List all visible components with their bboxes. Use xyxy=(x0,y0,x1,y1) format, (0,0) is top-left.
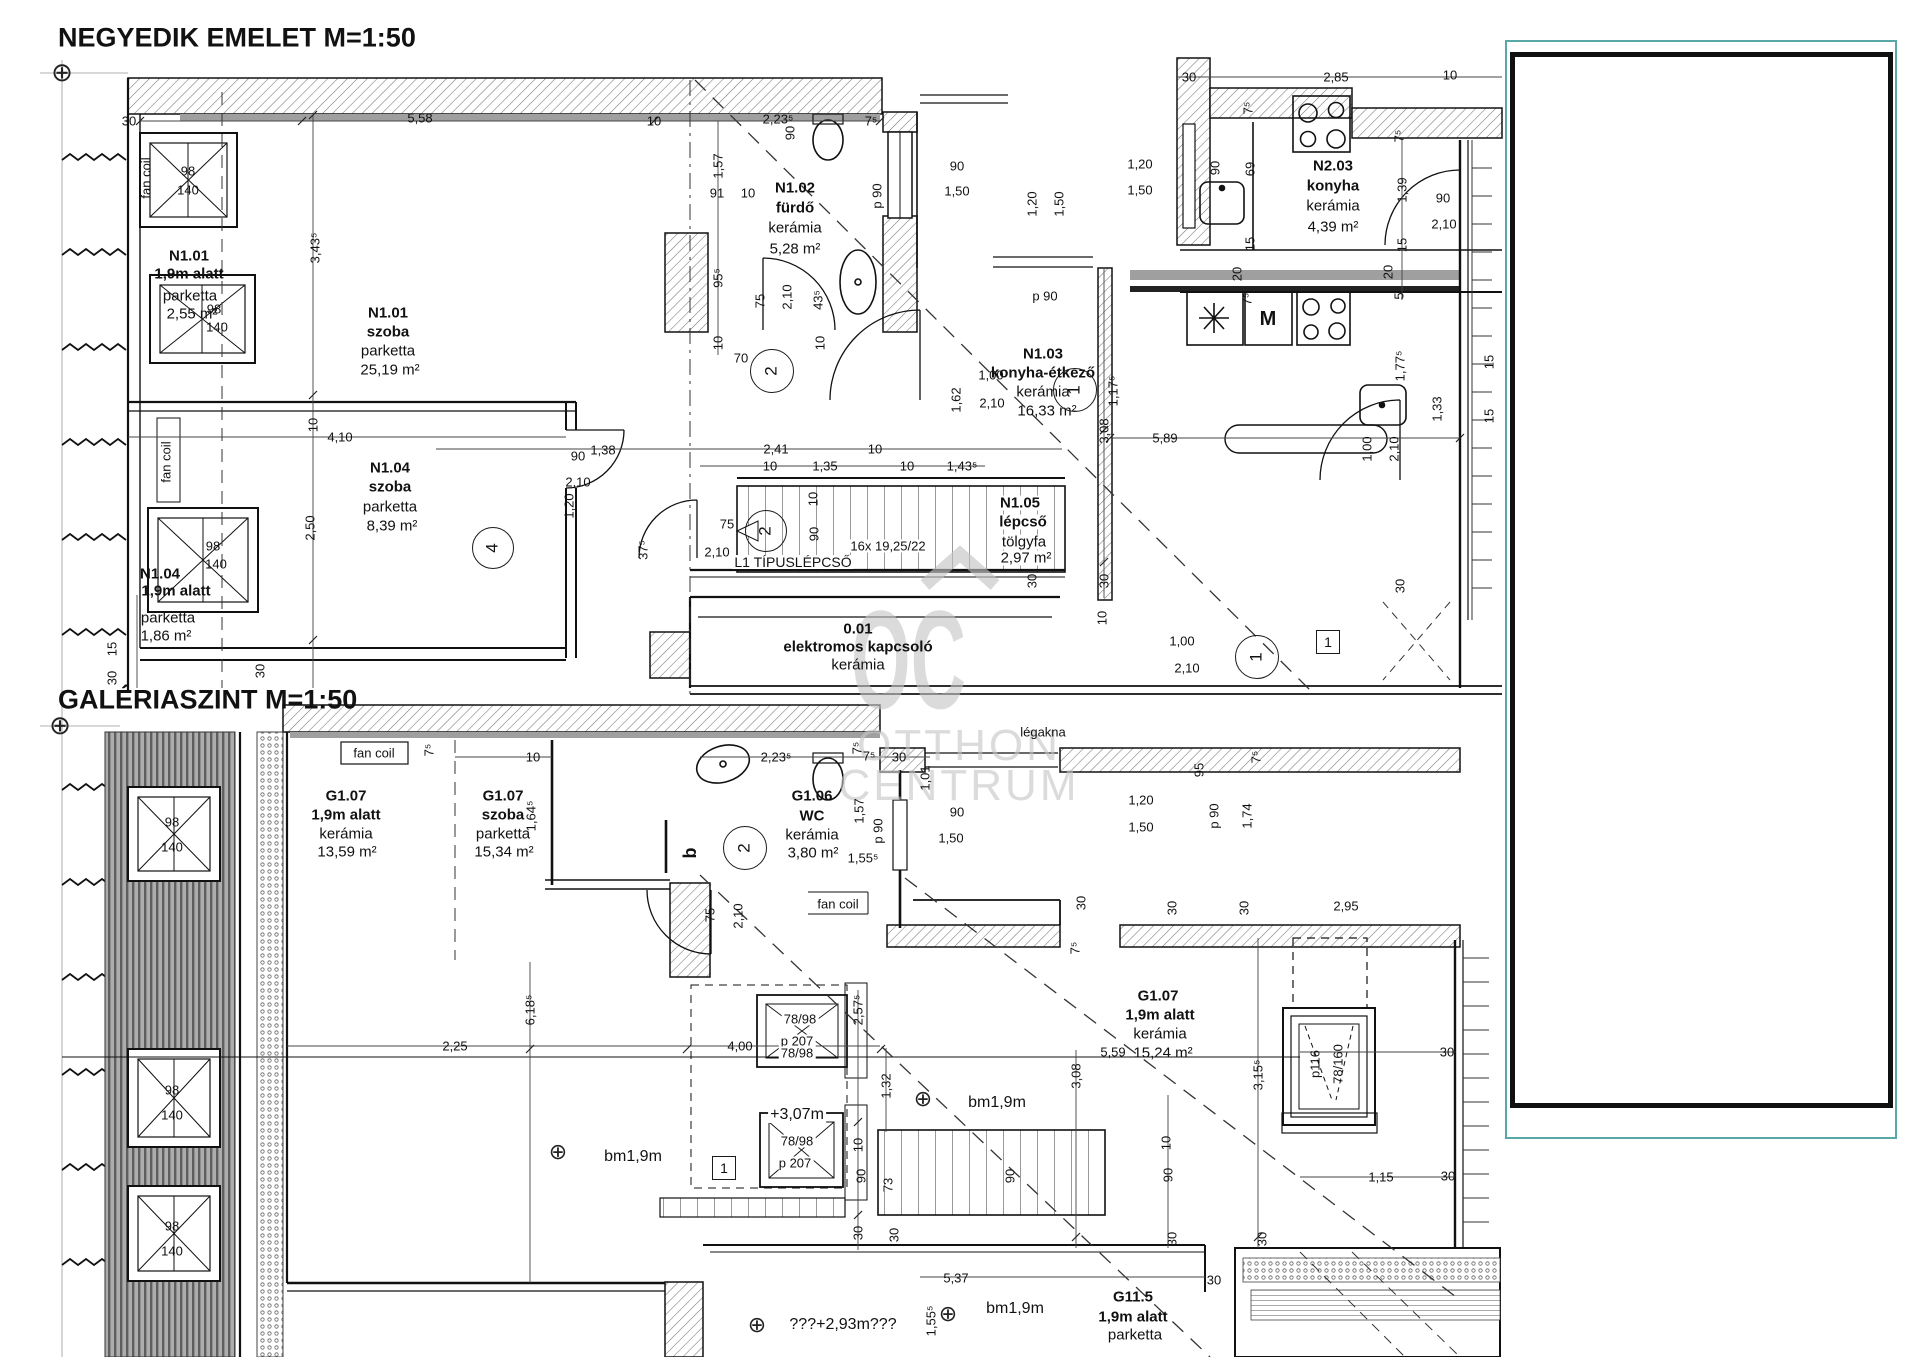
plan-label: kerámia xyxy=(831,658,884,673)
plan-label: 2,10 xyxy=(1174,662,1199,675)
plan-label: 1,20 xyxy=(1127,158,1152,171)
plan-label: 73 xyxy=(882,1178,895,1192)
plan-label: 2,23⁵ xyxy=(761,751,792,764)
plan-label: bm1,9m xyxy=(968,1095,1026,1111)
plan-label: 1,55⁵ xyxy=(848,852,879,865)
plan-label: 1,33 xyxy=(1431,396,1444,421)
plan-label: 10 xyxy=(852,1138,865,1152)
plan-label: 10 xyxy=(763,460,777,473)
plan-label: 6,18⁵ xyxy=(524,995,537,1026)
plan-label: p116 xyxy=(1309,1050,1322,1078)
reference-flag-marker: 1 xyxy=(712,1156,736,1180)
plan-label: 95⁵ xyxy=(712,268,725,288)
plan-label: 1,00 xyxy=(1361,436,1374,461)
plan-label: b xyxy=(681,848,699,859)
plan-label: 10 xyxy=(1096,611,1109,625)
plan-label: 30 xyxy=(1098,574,1111,588)
reference-circle-marker: 1 xyxy=(1235,635,1279,679)
plan-label: 2,50 xyxy=(304,515,317,540)
plan-label: lépcső xyxy=(997,515,1049,530)
plan-label: 7⁵ xyxy=(1250,751,1263,764)
reference-flag-marker: 1 xyxy=(1316,630,1340,654)
reference-circle-marker: 4 xyxy=(472,527,514,569)
plan-label: 15,24 m² xyxy=(1133,1046,1192,1061)
plan-label: parketta xyxy=(1108,1328,1162,1343)
plan-label: 30 xyxy=(1256,1232,1269,1246)
plan-label: 30 xyxy=(1238,901,1251,915)
plan-label: 30 xyxy=(1026,574,1039,588)
plan-label: 1,39 xyxy=(1396,177,1409,202)
plan-label: tölgyfa xyxy=(1000,535,1048,550)
plan-label: 1,15 xyxy=(1368,1171,1393,1184)
plan-label: 2,57⁵ xyxy=(852,995,865,1026)
plan-label: 30 xyxy=(1166,1232,1179,1246)
plan-label: kerámia xyxy=(1306,199,1359,214)
plan-label: 90 xyxy=(808,527,821,541)
plan-label: N1.02 xyxy=(775,181,815,196)
plan-label: 90 xyxy=(950,160,964,173)
plan-label: elektromos kapcsoló xyxy=(783,640,932,655)
plan-label: 30 xyxy=(888,1228,901,1242)
plan-label: 1,50 xyxy=(944,185,969,198)
plan-label: 4,00 xyxy=(727,1040,752,1053)
plan-label: szoba xyxy=(369,480,412,495)
plan-label: 1,62 xyxy=(950,387,963,412)
plan-label: parketta xyxy=(141,611,195,626)
plan-label: G1.07 xyxy=(326,789,367,804)
plan-label: G1.07 xyxy=(1138,989,1179,1004)
plan-label: 90 xyxy=(784,126,797,140)
plan-label: NEGYEDIK EMELET M=1:50 xyxy=(58,25,416,52)
plan-label: 2,95 xyxy=(1333,900,1358,913)
plan-label: 7⁵ xyxy=(1242,102,1255,115)
plan-label: 30 xyxy=(1075,896,1088,910)
plan-label: G1.06 xyxy=(792,789,833,804)
plan-label: N1.05 xyxy=(998,496,1042,511)
survey-point-icon: ⊕ xyxy=(939,1303,957,1325)
plan-label: 1,50 xyxy=(1128,821,1153,834)
plan-label: 1,9m alatt xyxy=(1125,1008,1194,1023)
plan-label: 75 xyxy=(754,294,767,308)
plan-label: 1,20 xyxy=(563,493,576,518)
plan-label: fan coil xyxy=(353,747,394,760)
survey-point-icon: ⊕ xyxy=(914,1088,932,1110)
plan-label: 10 xyxy=(1160,1136,1173,1150)
plan-label: 2,25 xyxy=(442,1040,467,1053)
plan-label: 4,39 m² xyxy=(1308,220,1359,235)
side-panel xyxy=(1510,52,1893,1108)
plan-label: 90 xyxy=(1162,1168,1175,1182)
plan-label: 1,32 xyxy=(880,1073,893,1098)
plan-label: 1,57 xyxy=(712,153,725,178)
plan-label: 15 xyxy=(1483,355,1496,369)
plan-label: 3,80 m² xyxy=(788,846,839,861)
plan-label: 2,10 xyxy=(979,397,1004,410)
plan-label: 2,55 m² xyxy=(167,307,218,322)
plan-label: 3,15⁵ xyxy=(1252,1060,1265,1091)
plan-label: 10 xyxy=(1443,69,1457,82)
plan-label: 140 xyxy=(161,841,183,854)
plan-label: 1,50 xyxy=(938,832,963,845)
floor-plan-page: OC OTTHON CENTRUM const data = JSON.pars… xyxy=(0,0,1920,1357)
plan-label: 3,43⁵ xyxy=(309,233,322,264)
plan-label: 98 xyxy=(165,1220,179,1233)
plan-label: G1.07 xyxy=(483,789,524,804)
plan-label: 0.01 xyxy=(843,622,872,637)
survey-point-icon: ⊕ xyxy=(49,712,71,738)
plan-label: p 90 xyxy=(1208,803,1221,828)
plan-label: konyha xyxy=(1307,179,1360,194)
plan-label: N2.03 xyxy=(1313,159,1353,174)
plan-label: 1,17⁵ xyxy=(1107,376,1120,407)
plan-label: 10 xyxy=(526,751,540,764)
plan-label: p 90 xyxy=(871,183,884,208)
plan-label: 1,74 xyxy=(1241,803,1254,828)
plan-label: 90 xyxy=(1209,161,1222,175)
plan-label: 4,10 xyxy=(327,431,352,444)
watermark-line2: CENTRUM xyxy=(839,761,1080,810)
plan-label: 1,20 xyxy=(1128,794,1153,807)
plan-label: 15 xyxy=(1396,238,1409,252)
plan-label: 140 xyxy=(161,1109,183,1122)
plan-label: 78/98 xyxy=(782,1013,819,1026)
plan-label: N1.03 xyxy=(1023,347,1063,362)
plan-label: 2,10 xyxy=(704,546,729,559)
plan-label: 98 xyxy=(181,165,195,178)
plan-label: 69 xyxy=(1244,162,1257,176)
plan-label: p 207 xyxy=(777,1157,814,1170)
plan-label: 30 xyxy=(1182,71,1196,84)
plan-label: 7⁵ xyxy=(865,115,878,128)
plan-label: p 90 xyxy=(1032,290,1057,303)
plan-label: 20 xyxy=(1231,267,1244,281)
plan-label: 75 xyxy=(720,518,734,531)
plan-label: G11.5 xyxy=(1113,1290,1153,1305)
plan-label: 10 xyxy=(900,460,914,473)
plan-label: kerámia xyxy=(1133,1027,1186,1042)
plan-label: 2,10 xyxy=(565,476,590,489)
plan-label: 2,10 xyxy=(1431,218,1456,231)
plan-label: 5,59 xyxy=(1100,1046,1125,1059)
plan-label: 1,86 m² xyxy=(141,629,192,644)
plan-label: fan coil xyxy=(140,157,153,198)
plan-label: bm1,9m xyxy=(604,1149,662,1165)
plan-label: parketta xyxy=(476,827,530,842)
plan-label: 140 xyxy=(161,1245,183,1258)
plan-label: 10 xyxy=(307,418,320,432)
plan-label: 5,37 xyxy=(943,1272,968,1285)
plan-label: 10 xyxy=(741,187,755,200)
plan-label: fürdő xyxy=(776,201,814,216)
plan-label: 10 xyxy=(807,492,820,506)
plan-label: N1.01 xyxy=(169,249,209,264)
plan-label: 7⁵ xyxy=(1069,942,1082,955)
plan-label: 30 xyxy=(892,751,906,764)
plan-label: 30 xyxy=(1394,579,1407,593)
plan-label: 140 xyxy=(177,184,199,197)
reference-circle-marker: 1 xyxy=(1053,368,1097,412)
plan-label: 15 xyxy=(1244,237,1257,251)
plan-label: 1,38 xyxy=(590,444,615,457)
plan-label: 91 xyxy=(710,187,724,200)
plan-label: 37⁵ xyxy=(637,540,650,560)
plan-label: 10 xyxy=(868,443,882,456)
plan-label: 90 xyxy=(1436,192,1450,205)
plan-label: M xyxy=(1260,309,1277,329)
plan-label: ???+2,93m??? xyxy=(789,1317,896,1333)
plan-label: 1,9m alatt xyxy=(1098,1310,1167,1325)
plan-label: 1,50 xyxy=(1053,191,1066,216)
plan-label: 1,43⁵ xyxy=(947,460,978,473)
plan-label: 30 xyxy=(122,115,136,128)
plan-label: 90 xyxy=(1004,1169,1017,1183)
plan-label: 43⁵ xyxy=(812,290,825,310)
plan-label: 2,10 xyxy=(732,903,745,928)
survey-point-icon: ⊕ xyxy=(748,1314,766,1336)
plan-label: fan coil xyxy=(160,441,173,482)
plan-label: parketta xyxy=(163,289,217,304)
plan-label: N1.04 xyxy=(140,567,180,582)
plan-label: 5,89 xyxy=(1152,432,1177,445)
plan-label: 2,41 xyxy=(763,443,788,456)
plan-label: 8,39 m² xyxy=(367,519,418,534)
plan-label: 30 xyxy=(852,1226,865,1240)
plan-label: N1.04 xyxy=(370,461,410,476)
plan-label: L1 TÍPUSLÉPCSŐ xyxy=(732,555,853,569)
plan-label: 16x 19,25/22 xyxy=(848,540,927,553)
plan-label: GALÉRIASZINT M=1:50 xyxy=(58,687,357,714)
plan-label: 10 xyxy=(647,115,661,128)
plan-label: N1.01 xyxy=(368,306,408,321)
plan-label: 1,9m alatt xyxy=(311,808,380,823)
plan-label: 5,28 m² xyxy=(770,242,821,257)
plan-label: 5 xyxy=(1393,292,1406,299)
plan-label: 7⁵ xyxy=(1241,293,1254,306)
plan-label: 30 xyxy=(1440,1046,1454,1059)
plan-label: +3,07m xyxy=(768,1107,826,1123)
plan-label: kerámia xyxy=(785,828,838,843)
plan-label: 2,10 xyxy=(1388,436,1401,461)
plan-label: 7⁵ xyxy=(423,744,436,757)
plan-label: WC xyxy=(800,809,825,824)
plan-label: 140 xyxy=(205,558,227,571)
plan-label: 78/98 xyxy=(779,1135,816,1148)
survey-point-icon: ⊕ xyxy=(51,59,73,85)
plan-label: 1,64⁵ xyxy=(525,801,538,832)
plan-label: 2,10 xyxy=(781,284,794,309)
reference-circle-marker: 2 xyxy=(723,826,767,870)
plan-label: 2,97 m² xyxy=(999,551,1054,566)
plan-label: 75 xyxy=(704,908,717,922)
plan-label: parketta xyxy=(361,344,415,359)
plan-label: 13,59 m² xyxy=(317,845,376,860)
plan-label: 1,55⁵ xyxy=(925,1306,938,1337)
plan-label: 3,08 xyxy=(1098,418,1111,443)
plan-label: 15 xyxy=(106,642,119,656)
plan-label: 90 xyxy=(950,806,964,819)
plan-label: 3,08 xyxy=(1070,1063,1083,1088)
plan-label: 30 xyxy=(254,664,267,678)
plan-label: 95 xyxy=(1193,763,1206,777)
plan-label: 10 xyxy=(814,336,827,350)
plan-label: 15 xyxy=(1483,409,1496,423)
reference-circle-marker: 2 xyxy=(745,510,787,552)
plan-label: 78/98 xyxy=(779,1047,816,1060)
plan-label: 15,34 m² xyxy=(474,845,533,860)
plan-label: 1,35 xyxy=(812,460,837,473)
plan-label: 1,9m alatt xyxy=(154,267,223,282)
plan-label: 20 xyxy=(1382,265,1395,279)
plan-label: 30 xyxy=(1441,1170,1455,1183)
plan-label: légakna xyxy=(1020,726,1066,739)
plan-label: 90 xyxy=(855,1169,868,1183)
plan-label: kerámia xyxy=(768,221,821,236)
reference-circle-marker: 2 xyxy=(750,349,794,393)
plan-label: 2,23⁵ xyxy=(763,113,794,126)
plan-label: 1,20 xyxy=(1026,191,1039,216)
plan-label: 98 xyxy=(165,816,179,829)
plan-label: 70 xyxy=(734,352,748,365)
plan-label: 1,01 xyxy=(919,765,932,790)
plan-label: szoba xyxy=(482,808,525,823)
plan-label: 1,57 xyxy=(853,798,866,823)
plan-label: 1,50 xyxy=(1127,184,1152,197)
plan-label: 7⁵ xyxy=(851,742,864,755)
plan-label: 2,85 xyxy=(1323,71,1348,84)
plan-label: 1,9m alatt xyxy=(141,584,210,599)
plan-label: 10 xyxy=(712,336,725,350)
plan-label: 90 xyxy=(571,450,585,463)
plan-label: parketta xyxy=(363,500,417,515)
plan-label: 1,00 xyxy=(1169,635,1194,648)
plan-label: 7⁵ xyxy=(1393,130,1406,143)
plan-label: 98 xyxy=(206,540,220,553)
plan-label: fan coil xyxy=(817,898,858,911)
plan-label: 78/160 xyxy=(1332,1044,1345,1084)
plan-label: 1,77⁵ xyxy=(1394,351,1407,382)
plan-label: 7⁵ xyxy=(863,750,876,763)
survey-point-icon: ⊕ xyxy=(549,1141,567,1163)
plan-label: 30 xyxy=(1207,1274,1221,1287)
plan-label: 25,19 m² xyxy=(360,363,419,378)
plan-label: p 90 xyxy=(872,818,885,843)
plan-label: szoba xyxy=(367,325,410,340)
plan-label: 30 xyxy=(1166,901,1179,915)
plan-label: 30 xyxy=(106,671,119,685)
plan-label: kerámia xyxy=(319,827,372,842)
plan-label: 5,58 xyxy=(407,112,432,125)
plan-label: 98 xyxy=(165,1084,179,1097)
plan-label: bm1,9m xyxy=(986,1301,1044,1317)
